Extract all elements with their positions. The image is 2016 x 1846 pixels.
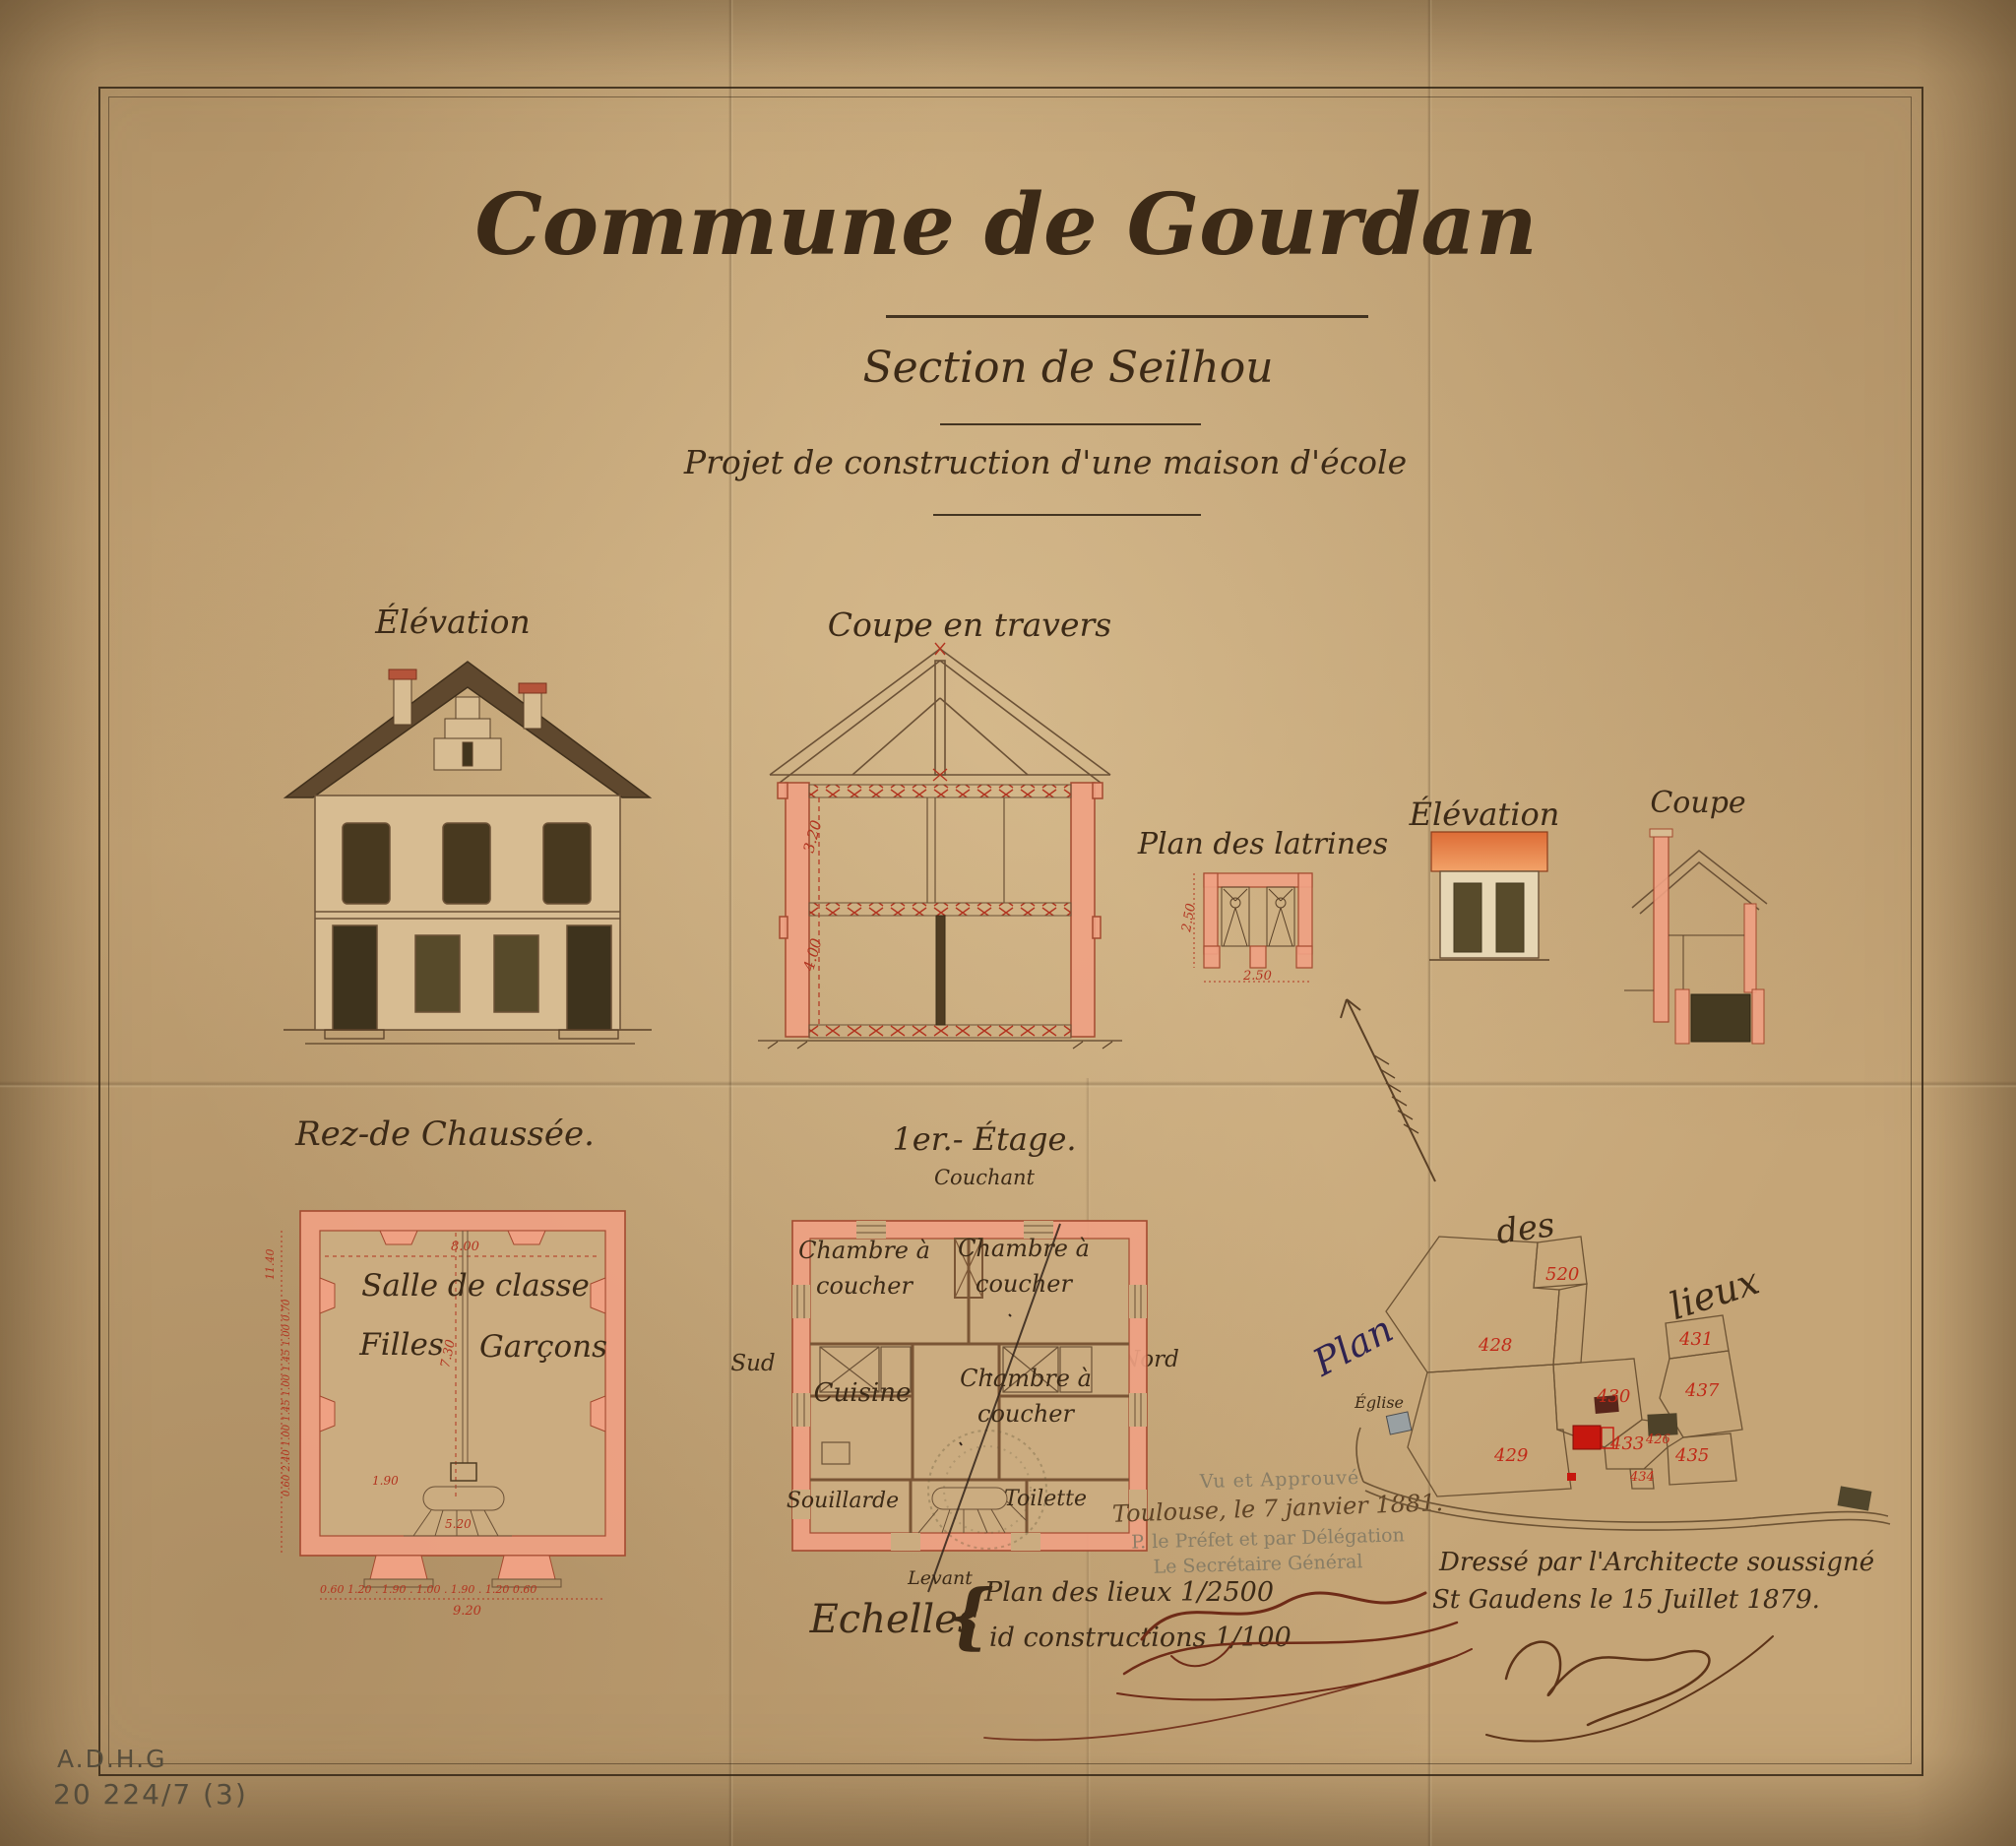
parcel-434: 434 (1629, 1470, 1655, 1485)
latrine-plan-caption: Plan des latrines (1138, 827, 1388, 861)
building-dark-3 (1838, 1486, 1872, 1510)
chimney-left (389, 669, 416, 679)
door-right (1496, 883, 1524, 952)
ff-room-toilette: Toilette (1004, 1487, 1087, 1511)
gf-dim-stair2: 5.20 (445, 1517, 472, 1531)
orientation-couchant: Couchant (934, 1166, 1035, 1189)
gf-dim-stair1: 1.90 (372, 1474, 399, 1488)
parcel-437: 437 (1684, 1380, 1720, 1401)
title-underline (886, 315, 1368, 318)
architect-signature (1472, 1615, 1806, 1762)
parcel-433: 433 (1609, 1433, 1644, 1454)
document-project: Projet de construction d'une maison d'éc… (684, 443, 1407, 481)
gf-dim-bottom-total: 9.20 (453, 1604, 481, 1619)
gf-dim-left-chain: 0.60 2.40 1.00 1.45 1.00 1.45 1.00 0.70 (282, 1299, 292, 1496)
door-left (1454, 883, 1481, 952)
parcel-431: 431 (1678, 1329, 1713, 1350)
parcel-429: 429 (1493, 1445, 1528, 1466)
parcel-520: 520 (1545, 1264, 1579, 1285)
north-arrow (1341, 999, 1435, 1181)
ff-room-chambre-1: Chambre à coucher (790, 1233, 938, 1304)
latrine-dim-horizontal: 2.50 (1242, 969, 1272, 984)
architect-line1: Dressé par l'Architecte soussigné (1439, 1548, 1874, 1577)
parcel-426: 426 (1645, 1432, 1670, 1447)
center-post (936, 916, 945, 1025)
stalls (1222, 887, 1294, 946)
parcel-428: 428 (1478, 1335, 1512, 1356)
ground-floor-caption: Rez-de Chaussée. (295, 1114, 595, 1154)
school-site (1567, 1426, 1613, 1481)
roof-truss (770, 649, 1110, 783)
gf-room-salle: Salle de classe (361, 1268, 590, 1304)
stepped-parapet (434, 697, 501, 770)
gf-room-garcons: Garçons (479, 1329, 607, 1365)
latrine-plan-drawing: 2.50 2.50 (1186, 861, 1344, 989)
church-building (1386, 1412, 1411, 1434)
gf-room-filles: Filles (359, 1327, 444, 1363)
latrine-section-caption: Coupe (1650, 786, 1745, 820)
ff-room-chambre-2: Chambre à coucher (950, 1231, 1098, 1302)
latrine-elevation-drawing (1425, 822, 1553, 975)
gf-dim-bottom-chain: 0.60 1.20 . 1.90 . 1.00 . 1.90 . 1.20 0.… (320, 1583, 536, 1596)
cross-section-drawing: 3.20 4.00 (758, 635, 1122, 1078)
prefect-signature (866, 1546, 1486, 1752)
elevation-caption: Élévation (375, 603, 530, 641)
ground-hatch (758, 1041, 1122, 1049)
ff-room-chambre-3: Chambre à coucher (952, 1361, 1100, 1432)
archive-line1: A.D.H.G (57, 1745, 167, 1773)
porches (370, 1556, 555, 1579)
gf-dim-top: 8.00 (451, 1240, 479, 1254)
site-word-des: des (1494, 1205, 1557, 1252)
parcel-435: 435 (1674, 1445, 1709, 1466)
archive-line2: 20 224/7 (3) (53, 1778, 248, 1811)
document-section: Section de Seilhou (862, 343, 1273, 393)
school-elevation-drawing (276, 640, 660, 1063)
chimney-right (519, 683, 546, 693)
project-underline (933, 514, 1201, 516)
parcel-430: 430 (1596, 1386, 1630, 1407)
section-underline (940, 423, 1201, 425)
first-floor-caption: 1er.- Étage. (892, 1120, 1076, 1158)
roof-band (1431, 832, 1547, 871)
document-title: Commune de Gourdan (474, 175, 1537, 275)
wall (1744, 904, 1756, 992)
architect-line2: St Gaudens le 15 Juillet 1879. (1432, 1585, 1820, 1615)
ground-floor-plan: 8.00 7.30 1.90 5.20 0.60 1.20 . 1.90 . 1… (266, 1172, 660, 1634)
church-label: Église (1354, 1392, 1404, 1412)
ff-room-cuisine: Cuisine (814, 1378, 912, 1408)
gf-dim-left-total: 11.40 (264, 1249, 277, 1281)
site-plan-drawing: Église 520 428 431 430 437 433 426 429 4… (1309, 985, 1920, 1536)
upper-windows (343, 823, 591, 904)
ff-room-souillarde: Souillarde (787, 1489, 899, 1513)
entry-steps (305, 1030, 635, 1044)
